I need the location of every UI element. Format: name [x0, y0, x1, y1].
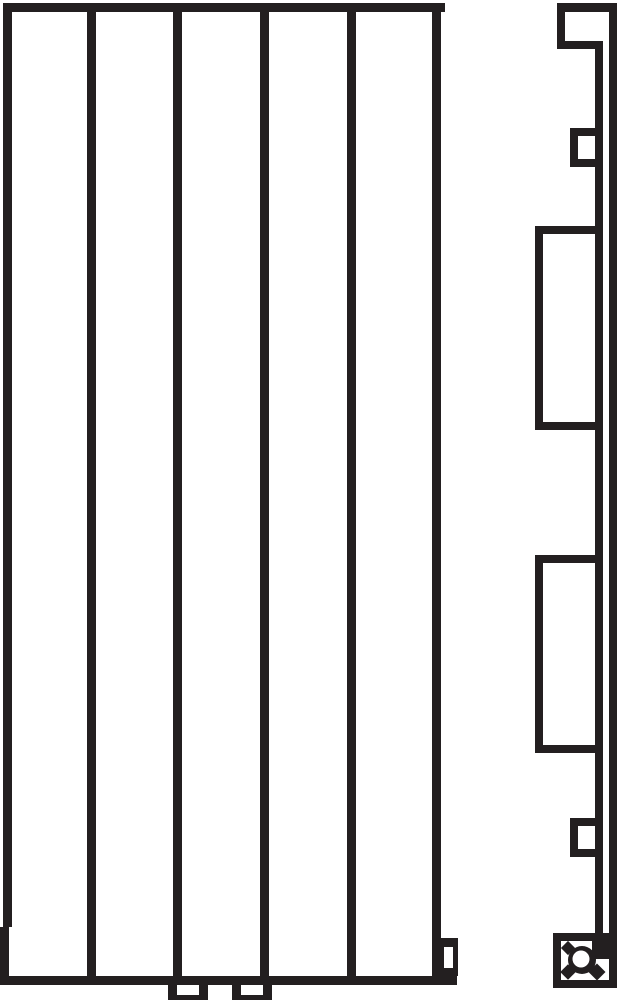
- radiator-technical-drawing-page: [0, 0, 621, 1000]
- panel-divider-3: [260, 9, 269, 976]
- radiator-drawing: [0, 0, 621, 1000]
- panel-divider-2: [173, 9, 182, 976]
- front-left-edge-lower: [0, 927, 9, 976]
- bottom-stub-1-inner: [177, 985, 199, 995]
- front-left-edge-upper: [3, 3, 12, 927]
- side-outer-line: [609, 3, 617, 988]
- mounting-box-1-inner: [543, 234, 595, 422]
- side-inner-line: [595, 41, 603, 941]
- pipe-bore-circle: [573, 951, 590, 968]
- panel-divider-1: [87, 9, 96, 976]
- front-top-edge: [3, 3, 445, 12]
- bottom-stub-2-inner: [241, 985, 263, 995]
- bracket-tab-2-inner: [578, 826, 595, 849]
- front-view: [0, 3, 458, 1000]
- panel-divider-4: [347, 9, 356, 976]
- front-bottom-edge: [0, 976, 457, 985]
- side-view: [535, 3, 617, 988]
- front-right-edge: [432, 3, 441, 976]
- side-top-cap-top-edge: [557, 3, 617, 12]
- bottom-right-tab-inner: [444, 947, 453, 968]
- mounting-box-2-inner: [543, 563, 595, 745]
- bracket-tab-1-inner: [578, 136, 595, 159]
